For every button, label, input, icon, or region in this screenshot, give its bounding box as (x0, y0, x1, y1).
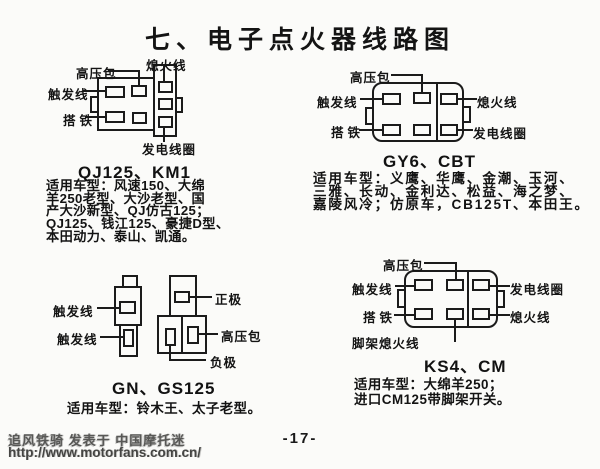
wire-line (489, 314, 510, 316)
wire-line (394, 314, 416, 316)
connector-pin (472, 279, 490, 291)
label-ground: 搭铁 (363, 307, 396, 326)
wire-line (395, 285, 416, 287)
diagram-ks4-cm: 高压包 触发线 搭铁 发电线圈 熄火线 脚架熄火线 KS4、CM 适用车型：大绵… (0, 0, 600, 469)
connector-divider (467, 271, 469, 327)
connector-tab (496, 290, 505, 308)
connector-pin (446, 308, 464, 320)
connector-pin (446, 279, 464, 291)
label-trigger-wire: 触发线 (352, 279, 393, 298)
scanned-page: 七、电子点火器线路图 高压包 熄火线 触发线 搭铁 发电线圈 QJ125、KM1… (0, 0, 600, 469)
label-kill-wire: 熄火线 (510, 307, 551, 326)
connector-pin (414, 279, 433, 291)
diagram-title: KS4、CM (424, 352, 507, 377)
wire-line (424, 262, 457, 264)
connector-pin (414, 308, 433, 320)
wire-line (489, 285, 510, 287)
applicable-line: 进口CM125带脚架开关。 (354, 393, 511, 408)
connector-tab (397, 289, 406, 308)
connector-pin (472, 308, 490, 320)
watermark-url: http://www.motorfans.com.cn/ (8, 445, 201, 460)
applicable-line: 适用车型：大绵羊250； (354, 378, 511, 393)
label-high-voltage-coil: 高压包 (383, 255, 424, 274)
label-generator-coil: 发电线圈 (510, 279, 564, 298)
label-stand-kill-wire: 脚架熄火线 (352, 333, 420, 352)
applicable-models: 适用车型：大绵羊250； 进口CM125带脚架开关。 (354, 378, 511, 407)
wire-line (454, 318, 456, 342)
